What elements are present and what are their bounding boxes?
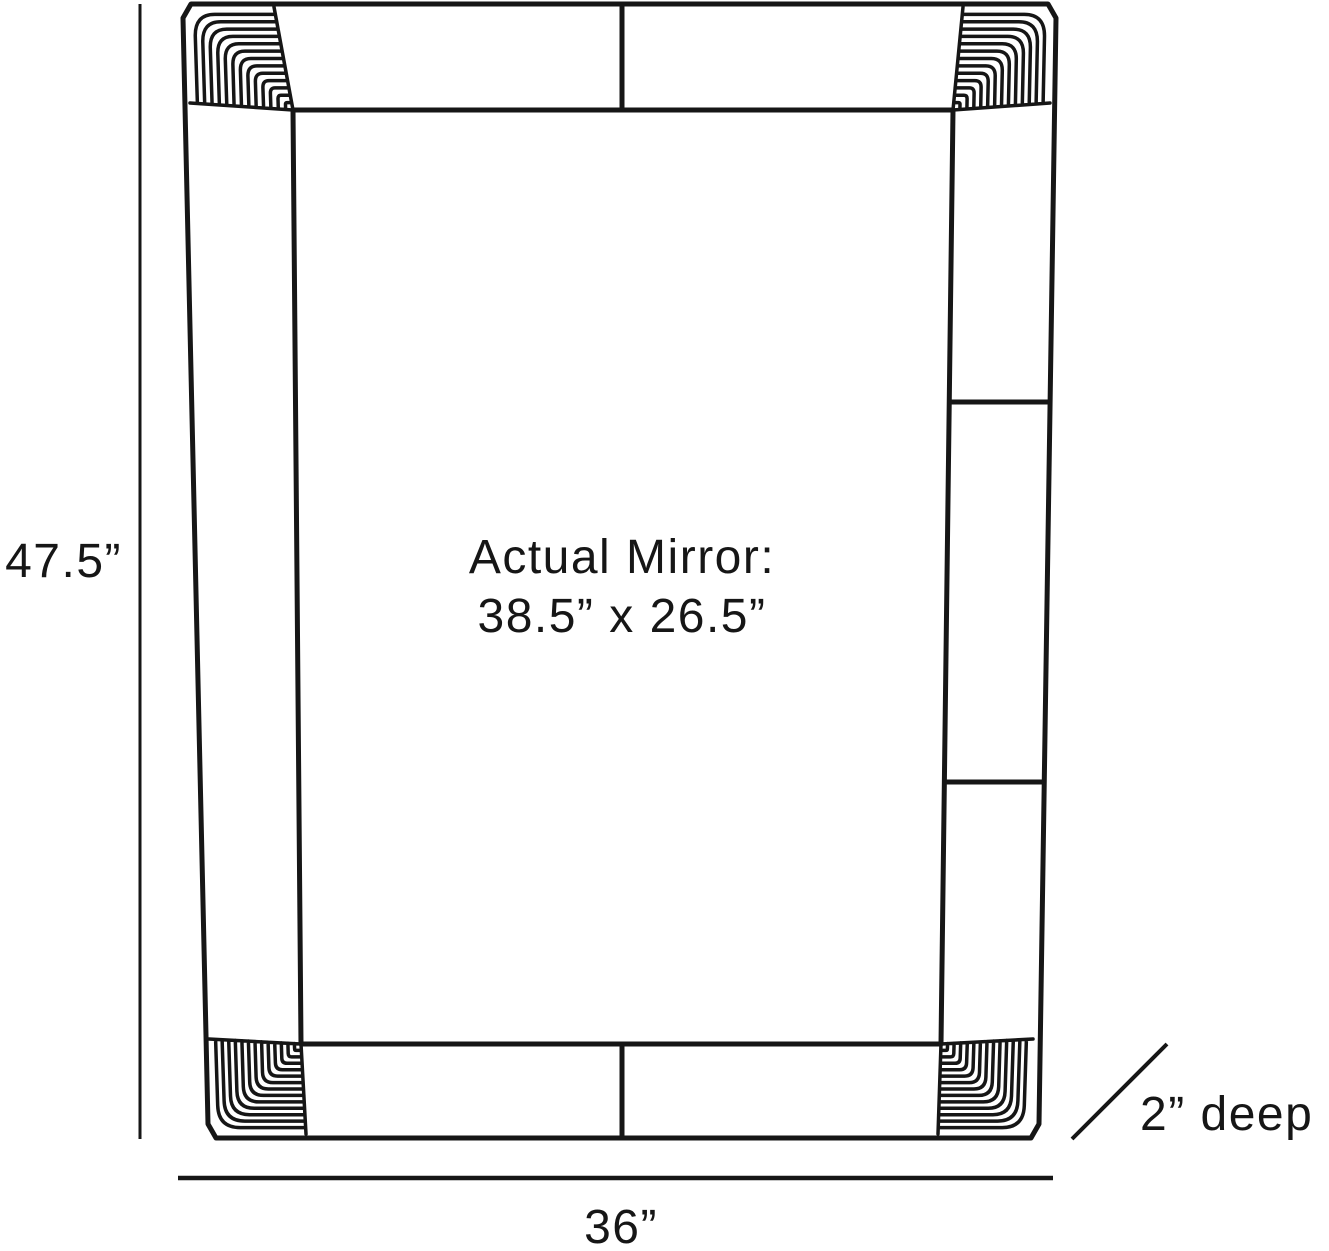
mirror-dimension-diagram: 47.5” 36” 2” deep Actual Mirror: 38.5” x… xyxy=(0,0,1329,1251)
corner-hatch-bottom-left xyxy=(209,1039,306,1134)
corner-hatch-lines xyxy=(190,7,293,110)
width-dimension: 36” xyxy=(178,1178,1053,1251)
mirror-note-line1: Actual Mirror: xyxy=(469,531,775,584)
mirror-size-annotation: Actual Mirror: 38.5” x 26.5” xyxy=(469,531,775,643)
corner-hatch-lines xyxy=(938,1039,1033,1134)
corner-hatch-top-right xyxy=(953,7,1050,110)
corner-hatch-lines xyxy=(953,7,1050,110)
corner-hatch-top-left xyxy=(190,7,293,110)
height-label: 47.5” xyxy=(5,535,122,588)
width-label: 36” xyxy=(584,1201,658,1251)
corner-hatch-bottom-right xyxy=(938,1039,1033,1134)
mirror-note-line2: 38.5” x 26.5” xyxy=(478,590,767,643)
diagram-page: 47.5” 36” 2” deep Actual Mirror: 38.5” x… xyxy=(0,0,1329,1251)
depth-dimension: 2” deep xyxy=(1072,1044,1313,1141)
height-dimension: 47.5” xyxy=(5,4,140,1139)
corner-hatch-lines xyxy=(209,1039,306,1134)
depth-label: 2” deep xyxy=(1140,1088,1313,1141)
